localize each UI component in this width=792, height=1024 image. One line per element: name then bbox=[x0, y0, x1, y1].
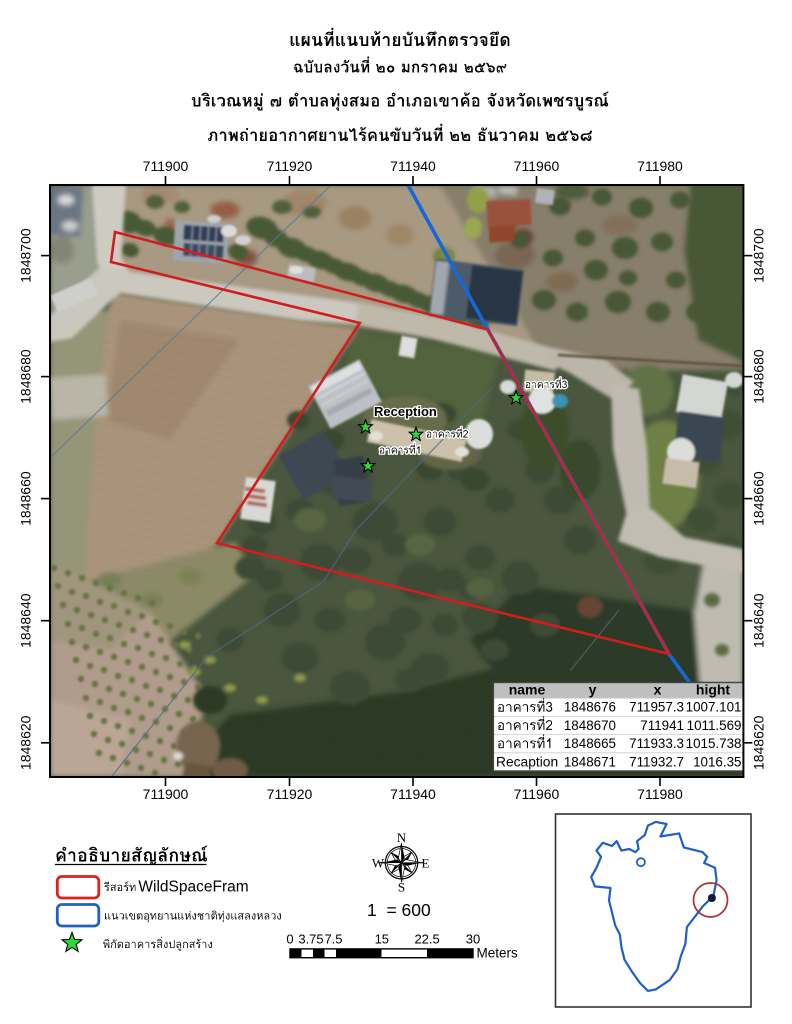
svg-text:711941: 711941 bbox=[640, 718, 684, 733]
svg-text:711960: 711960 bbox=[514, 786, 560, 802]
svg-text:name: name bbox=[509, 682, 546, 698]
svg-text:1848670: 1848670 bbox=[564, 718, 616, 733]
svg-text:1015.738: 1015.738 bbox=[686, 736, 742, 751]
svg-text:1848676: 1848676 bbox=[564, 700, 616, 715]
svg-text:1848671: 1848671 bbox=[564, 754, 616, 769]
svg-text:7.5: 7.5 bbox=[324, 932, 342, 947]
svg-text:E: E bbox=[422, 855, 430, 870]
svg-text:1016.35: 1016.35 bbox=[693, 754, 741, 769]
svg-text:15: 15 bbox=[375, 932, 389, 947]
svg-text:1848680: 1848680 bbox=[18, 349, 34, 404]
svg-text:1011.569: 1011.569 bbox=[687, 718, 742, 733]
svg-text:711920: 711920 bbox=[267, 786, 313, 802]
svg-text:711960: 711960 bbox=[514, 158, 560, 174]
svg-text:711920: 711920 bbox=[267, 158, 313, 174]
svg-text:711932.7: 711932.7 bbox=[629, 754, 684, 769]
svg-text:711980: 711980 bbox=[637, 786, 683, 802]
svg-text:1007.101: 1007.101 bbox=[686, 700, 742, 715]
svg-text:Reception: Reception bbox=[374, 404, 437, 419]
svg-text:hight: hight bbox=[696, 682, 731, 698]
svg-text:Meters: Meters bbox=[477, 946, 519, 961]
svg-text:711933.3: 711933.3 bbox=[629, 736, 684, 751]
svg-text:711940: 711940 bbox=[390, 786, 436, 802]
svg-text:711957.3: 711957.3 bbox=[629, 700, 684, 715]
svg-text:S: S bbox=[398, 880, 405, 895]
svg-text:0: 0 bbox=[286, 932, 293, 947]
svg-text:30: 30 bbox=[466, 932, 480, 947]
svg-text:1848640: 1848640 bbox=[750, 593, 766, 648]
svg-text:3.75: 3.75 bbox=[298, 932, 323, 947]
svg-text:1848660: 1848660 bbox=[750, 471, 766, 526]
svg-text:WildSpaceFram: WildSpaceFram bbox=[138, 879, 248, 896]
svg-text:1848700: 1848700 bbox=[750, 228, 766, 283]
svg-text:1848640: 1848640 bbox=[18, 593, 34, 648]
svg-text:1848620: 1848620 bbox=[750, 715, 766, 770]
svg-text:W: W bbox=[372, 855, 385, 870]
svg-text:22.5: 22.5 bbox=[414, 932, 439, 947]
svg-text:1 = 600: 1 = 600 bbox=[367, 900, 431, 920]
svg-text:x: x bbox=[654, 682, 662, 698]
svg-text:1848700: 1848700 bbox=[18, 228, 34, 283]
svg-text:711940: 711940 bbox=[390, 158, 436, 174]
svg-text:N: N bbox=[397, 830, 407, 845]
svg-text:1848665: 1848665 bbox=[564, 736, 616, 751]
svg-text:711900: 711900 bbox=[143, 786, 189, 802]
svg-text:y: y bbox=[589, 682, 597, 698]
svg-text:1848620: 1848620 bbox=[18, 715, 34, 770]
svg-text:711900: 711900 bbox=[143, 158, 189, 174]
svg-text:Recaption: Recaption bbox=[496, 754, 558, 769]
svg-text:1848680: 1848680 bbox=[750, 349, 766, 404]
svg-text:1848660: 1848660 bbox=[18, 471, 34, 526]
svg-text:711980: 711980 bbox=[637, 158, 683, 174]
